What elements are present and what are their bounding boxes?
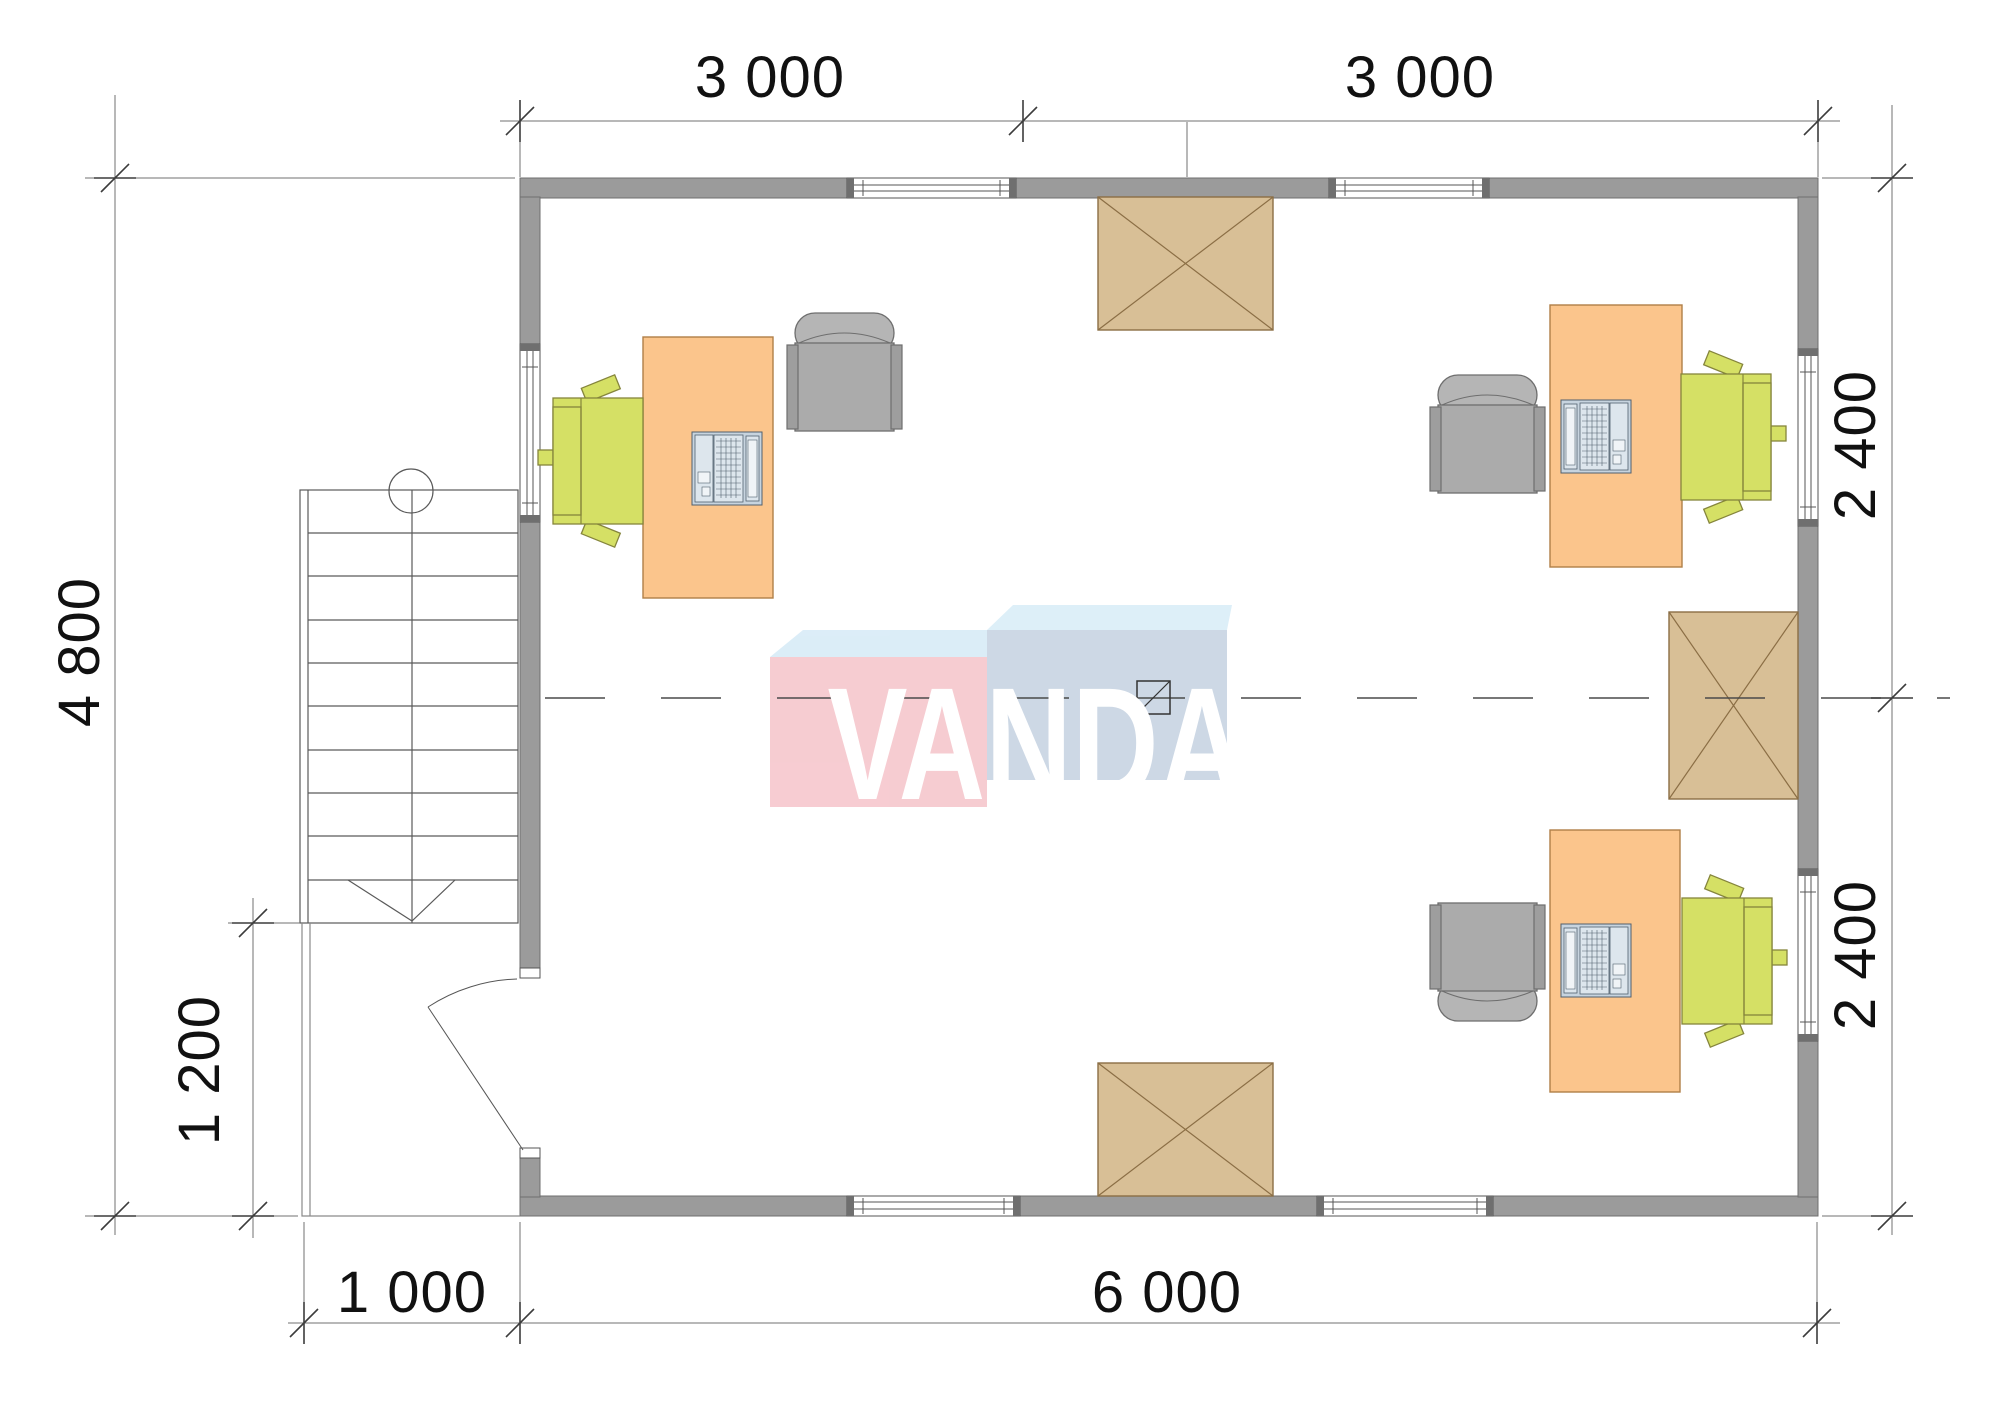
floor-plan-canvas: VANDA 3 000 3 000 4 800 1 200 2 400 2 40… <box>0 0 2000 1410</box>
vanda-watermark-text: VANDA <box>828 664 1173 824</box>
dim-right-lower: 2 400 <box>1827 880 1885 1030</box>
hatched-box-bottom <box>1098 1063 1273 1196</box>
dim-left-4800: 4 800 <box>51 577 109 727</box>
dim-right-upper: 2 400 <box>1827 370 1885 520</box>
porch <box>302 923 520 1216</box>
dim-top-right: 3 000 <box>1345 49 1495 107</box>
laptop <box>1561 924 1631 997</box>
window-bottom-left <box>847 1196 1020 1216</box>
hatched-box-right <box>1669 612 1798 799</box>
workstation-top-left <box>538 313 902 598</box>
dim-top-left: 3 000 <box>695 49 845 107</box>
laptop <box>692 432 762 505</box>
window-right-lower <box>1798 869 1818 1041</box>
gray-armchair <box>1430 375 1545 493</box>
green-chair <box>1682 875 1787 1047</box>
workstation-top-right <box>1430 305 1786 567</box>
window-top-left <box>847 178 1016 198</box>
gray-armchair <box>1430 903 1545 1021</box>
green-chair <box>1681 351 1786 523</box>
window-left <box>520 344 540 522</box>
dim-bottom-6000: 6 000 <box>1092 1264 1242 1322</box>
green-chair <box>538 375 643 547</box>
staircase <box>300 469 518 923</box>
laptop <box>1561 400 1631 473</box>
window-top-right <box>1329 178 1489 198</box>
gray-armchair <box>787 313 902 431</box>
window-bottom-right <box>1317 1196 1493 1216</box>
dim-left-1200: 1 200 <box>171 995 229 1145</box>
workstation-bottom-right <box>1430 830 1787 1092</box>
window-right-upper <box>1798 349 1818 526</box>
dim-bottom-1000: 1 000 <box>337 1264 487 1322</box>
entry-door <box>428 968 540 1158</box>
hatched-box-top <box>1098 197 1273 330</box>
